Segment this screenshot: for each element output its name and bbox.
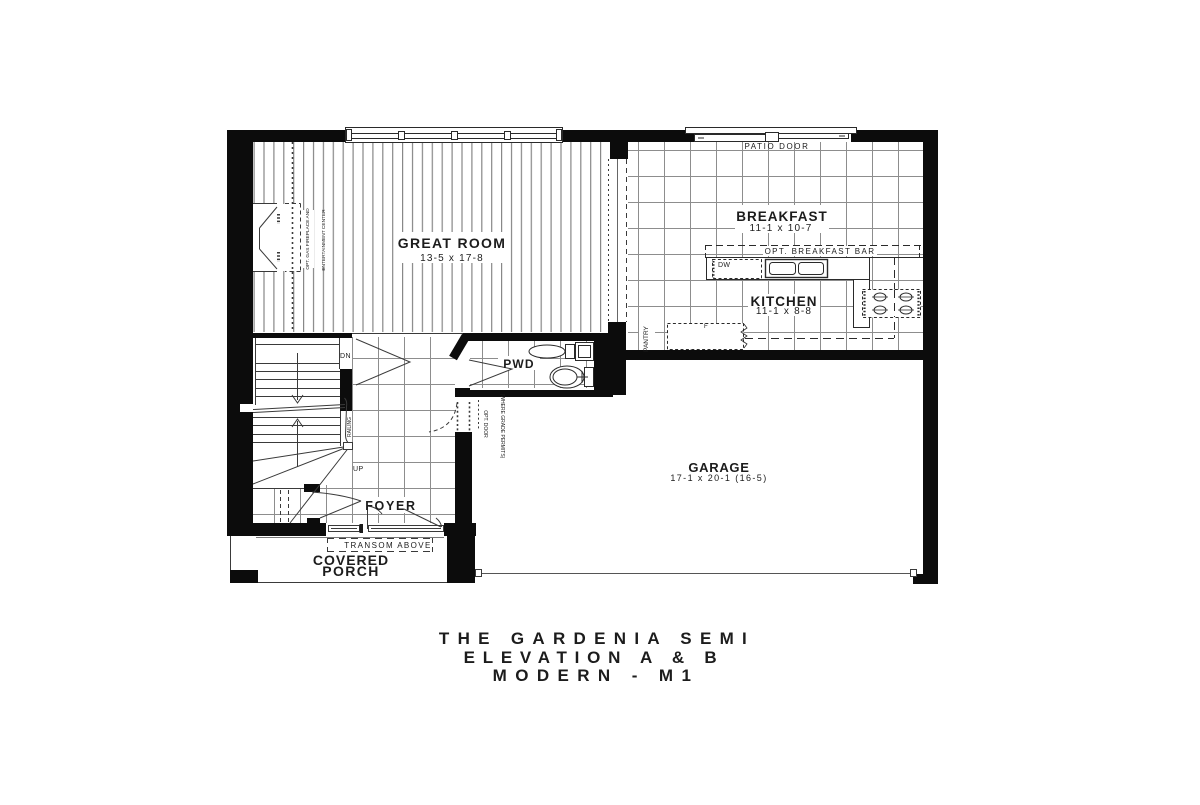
svg-text:OPT. DOOR: OPT. DOOR [482, 410, 488, 438]
svg-text:DN: DN [340, 353, 351, 360]
svg-text:PWD: PWD [503, 357, 535, 371]
svg-text:MODERN - M1: MODERN - M1 [493, 666, 700, 685]
svg-text:PATIO DOOR: PATIO DOOR [744, 142, 809, 151]
svg-text:THE GARDENIA SEMI: THE GARDENIA SEMI [439, 629, 755, 648]
svg-text:BREAKFAST: BREAKFAST [736, 209, 828, 224]
svg-text:(WHERE GRADE PERMITS): (WHERE GRADE PERMITS) [499, 394, 505, 459]
svg-text:13-5 x 17-8: 13-5 x 17-8 [420, 253, 484, 264]
svg-text:11-1 x 10-7: 11-1 x 10-7 [749, 223, 812, 234]
svg-text:TRANSOM ABOVE: TRANSOM ABOVE [344, 541, 432, 550]
svg-text:F: F [704, 324, 708, 330]
svg-text:OPT. GAS FIREPLACE AND: OPT. GAS FIREPLACE AND [305, 208, 311, 270]
svg-text:ELEVATION A & B: ELEVATION A & B [464, 648, 725, 667]
svg-text:11-1 x 8-8: 11-1 x 8-8 [756, 306, 812, 317]
svg-text:RAILING: RAILING [347, 417, 353, 437]
svg-text:DW: DW [718, 262, 730, 269]
svg-text:PANTRY: PANTRY [643, 325, 650, 351]
svg-text:UP: UP [353, 466, 364, 473]
svg-text:GREAT ROOM: GREAT ROOM [398, 235, 506, 251]
svg-text:FOYER: FOYER [365, 499, 417, 513]
svg-text:OPT. BREAKFAST BAR: OPT. BREAKFAST BAR [765, 247, 876, 256]
svg-text:17-1 x 20-1 (16-5): 17-1 x 20-1 (16-5) [670, 473, 767, 483]
svg-text:ENTERTAINMENT CENTER: ENTERTAINMENT CENTER [321, 209, 327, 271]
svg-text:PORCH: PORCH [322, 563, 380, 579]
